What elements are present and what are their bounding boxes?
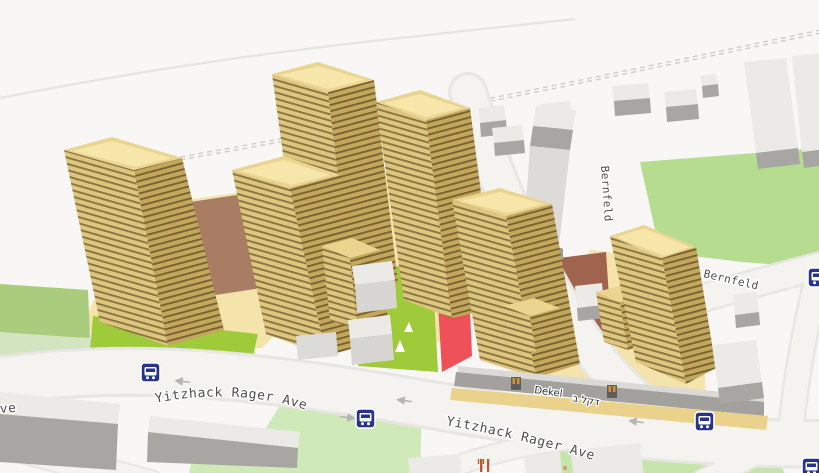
building	[612, 83, 651, 116]
bus-stop-icon[interactable]	[802, 458, 819, 473]
building	[733, 292, 760, 328]
bus-stop-icon[interactable]	[695, 412, 714, 431]
building	[492, 125, 525, 156]
bus-stop-icon[interactable]	[808, 268, 819, 287]
map-canvas[interactable]: 13	[0, 0, 819, 473]
entrance-door-icon	[511, 377, 521, 390]
street-label-partial: ve	[0, 401, 17, 417]
green-strip-area	[0, 284, 90, 338]
building	[712, 340, 764, 404]
building	[664, 89, 699, 122]
entrance-door-icon	[607, 385, 617, 398]
bus-stop-icon[interactable]	[356, 409, 375, 428]
building	[700, 74, 719, 98]
poi-dot-icon[interactable]	[563, 466, 567, 470]
bus-stop-icon[interactable]	[141, 363, 160, 382]
building	[0, 392, 120, 470]
